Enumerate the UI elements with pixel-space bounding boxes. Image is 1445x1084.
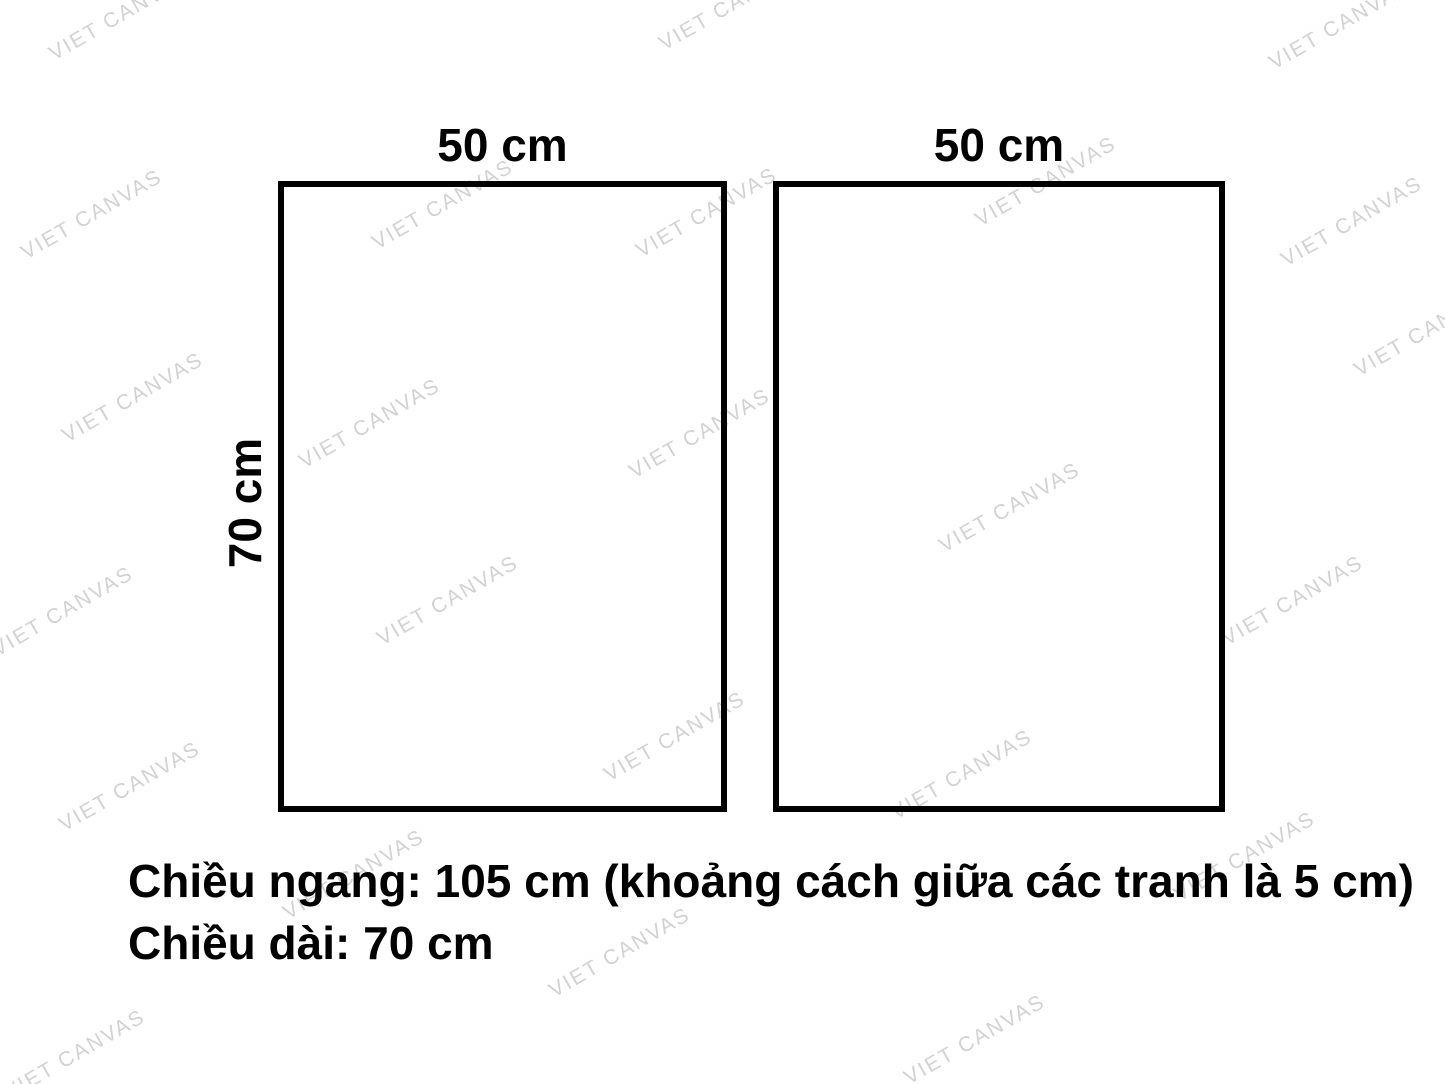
watermark-text: VIET CANVAS xyxy=(1265,0,1415,75)
left-frame-rectangle xyxy=(278,181,727,812)
size-diagram: VIET CANVASVIET CANVASVIET CANVASVIET CA… xyxy=(0,0,1445,1084)
right-frame-rectangle xyxy=(773,181,1225,812)
watermark-text: VIET CANVAS xyxy=(1277,172,1427,272)
caption-vertical-dimension: Chiều dài: 70 cm xyxy=(128,912,1414,974)
watermark-text: VIET CANVAS xyxy=(58,348,208,448)
watermark-text: VIET CANVAS xyxy=(55,737,205,837)
watermark-text: VIET CANVAS xyxy=(45,0,195,66)
right-frame-width-label: 50 cm xyxy=(773,122,1225,168)
caption-horizontal-dimension: Chiều ngang: 105 cm (khoảng cách giữa cá… xyxy=(128,850,1414,912)
left-frame-height-label: 70 cm xyxy=(222,438,268,568)
watermark-text: VIET CANVAS xyxy=(17,165,167,265)
caption: Chiều ngang: 105 cm (khoảng cách giữa cá… xyxy=(128,850,1414,974)
watermark-text: VIET CANVAS xyxy=(900,990,1050,1084)
watermark-text: VIET CANVAS xyxy=(1218,551,1368,651)
watermark-text: VIET CANVAS xyxy=(1350,282,1445,382)
watermark-text: VIET CANVAS xyxy=(655,0,805,56)
left-frame-width-label: 50 cm xyxy=(278,122,727,168)
watermark-text: VIET CANVAS xyxy=(0,562,138,662)
watermark-text: VIET CANVAS xyxy=(0,1005,150,1084)
